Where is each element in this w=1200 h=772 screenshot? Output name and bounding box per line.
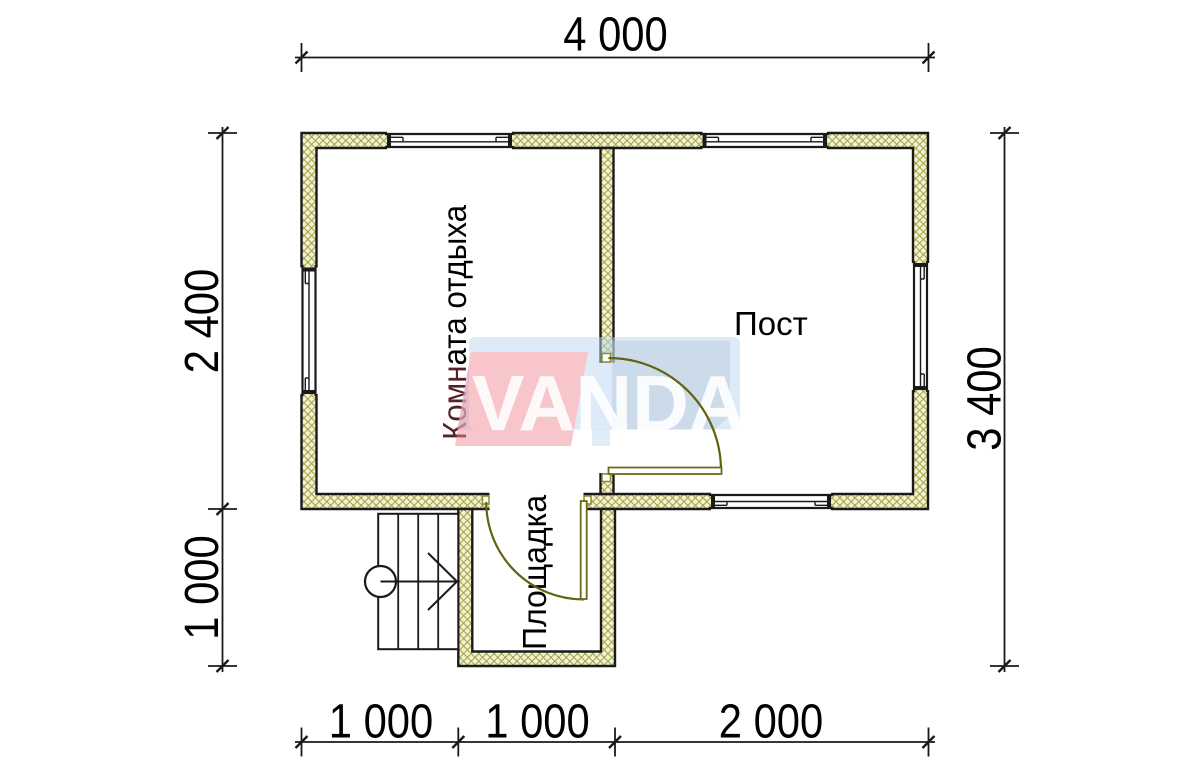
svg-text:2 000: 2 000 bbox=[719, 694, 823, 748]
svg-text:1 000: 1 000 bbox=[329, 694, 433, 748]
svg-text:VANDA: VANDA bbox=[472, 359, 746, 447]
svg-text:2 400: 2 400 bbox=[174, 269, 228, 373]
svg-text:1 000: 1 000 bbox=[485, 694, 589, 748]
svg-text:1 000: 1 000 bbox=[174, 535, 228, 639]
svg-text:4 000: 4 000 bbox=[563, 7, 667, 61]
svg-text:Пост: Пост bbox=[734, 305, 808, 342]
svg-text:Площадка: Площадка bbox=[517, 494, 554, 650]
svg-text:3 400: 3 400 bbox=[957, 346, 1011, 450]
